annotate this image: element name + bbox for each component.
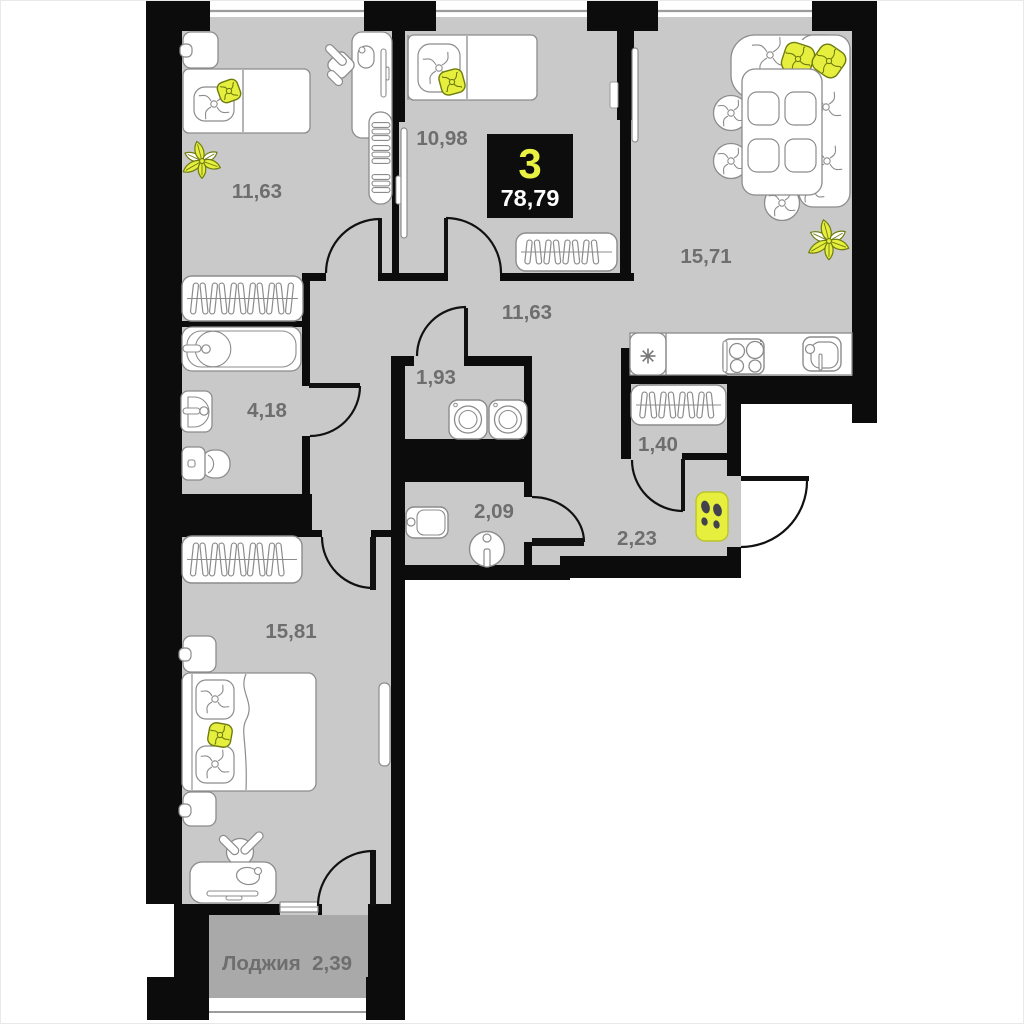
svg-text:78,79: 78,79 <box>501 185 560 211</box>
svg-text:2,09: 2,09 <box>474 500 514 523</box>
svg-text:3: 3 <box>518 140 541 187</box>
svg-text:15,81: 15,81 <box>265 620 316 643</box>
svg-text:1,40: 1,40 <box>638 433 678 456</box>
svg-text:10,98: 10,98 <box>416 127 467 150</box>
svg-text:2,23: 2,23 <box>617 527 657 550</box>
svg-text:11,63: 11,63 <box>502 301 552 324</box>
svg-text:4,18: 4,18 <box>247 399 287 422</box>
svg-text:15,71: 15,71 <box>680 245 731 268</box>
svg-text:1,93: 1,93 <box>416 366 456 389</box>
svg-text:Лоджия 2,39: Лоджия 2,39 <box>222 952 352 975</box>
svg-text:11,63: 11,63 <box>232 180 282 203</box>
